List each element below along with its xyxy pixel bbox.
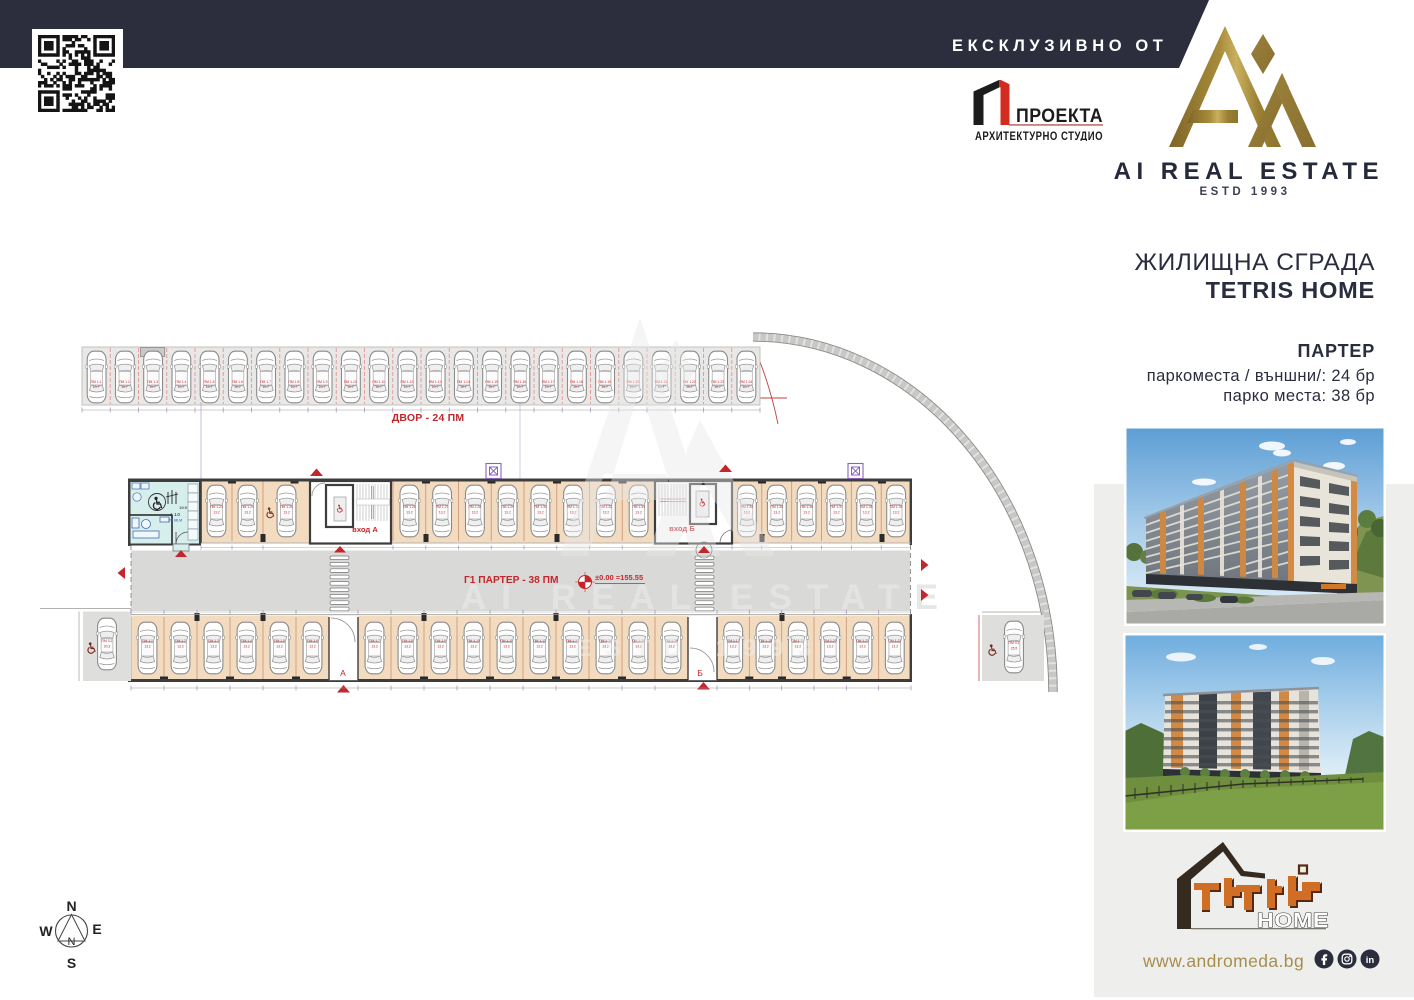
svg-text:ПМ 1.10: ПМ 1.10 [344,380,357,384]
svg-text:ПМ 1.2: ПМ 1.2 [119,380,130,384]
svg-text:13.2: 13.2 [470,645,477,649]
svg-text:13.2: 13.2 [827,645,834,649]
svg-text:ПМ 1.28: ПМ 1.28 [468,505,481,509]
svg-text:ПМ 1.11: ПМ 1.11 [500,639,513,643]
svg-text:25.5: 25.5 [1011,647,1018,651]
svg-text:10.7: 10.7 [686,385,693,389]
svg-text:10.7: 10.7 [517,385,524,389]
svg-text:ПМ 1.23: ПМ 1.23 [210,505,223,509]
svg-text:10.7: 10.7 [262,385,269,389]
svg-text:ПМ 1.6: ПМ 1.6 [232,380,243,384]
svg-text:10.7: 10.7 [93,385,100,389]
svg-text:13.2: 13.2 [893,511,900,515]
svg-text:ПМ 1.5: ПМ 1.5 [274,639,285,643]
svg-text:20.3: 20.3 [104,645,111,649]
svg-text:ПМ 1.38: ПМ 1.38 [860,505,873,509]
svg-text:ДВОР - 24 ПМ: ДВОР - 24 ПМ [392,412,465,424]
svg-text:10.7: 10.7 [149,385,156,389]
svg-text:13.2: 13.2 [859,645,866,649]
svg-text:ПМ 1.1: ПМ 1.1 [142,639,153,643]
svg-text:ПМ 1.3: ПМ 1.3 [208,639,219,643]
svg-text:13.2: 13.2 [863,511,870,515]
svg-text:13.2: 13.2 [891,645,898,649]
svg-text:13.2: 13.2 [243,645,250,649]
svg-text:13.2: 13.2 [371,645,378,649]
svg-text:ПМ 1.37: ПМ 1.37 [830,505,843,509]
svg-text:19.9: 19.9 [179,505,188,510]
svg-text:13.2: 13.2 [803,511,810,515]
svg-text:ПМ 1.26: ПМ 1.26 [403,505,416,509]
svg-text:ПМ 1.8: ПМ 1.8 [288,380,299,384]
svg-text:ПМ 1.4: ПМ 1.4 [241,639,252,643]
svg-text:13.2: 13.2 [536,645,543,649]
svg-text:13.2: 13.2 [144,645,151,649]
svg-text:ПМ 1.8: ПМ 1.8 [402,639,413,643]
svg-text:ПМ 1.4: ПМ 1.4 [175,380,186,384]
svg-text:13.2: 13.2 [472,511,479,515]
svg-text:13.2: 13.2 [635,511,642,515]
svg-text:ПМ 1.39: ПМ 1.39 [890,505,903,509]
svg-text:ПМ 3.2: ПМ 3.2 [102,639,113,643]
svg-text:10.7: 10.7 [404,385,411,389]
svg-text:13.2: 13.2 [210,645,217,649]
svg-text:13.2: 13.2 [833,511,840,515]
svg-text:13.2: 13.2 [437,645,444,649]
svg-text:ПМ 1.11: ПМ 1.11 [372,380,385,384]
svg-text:ПМ 1.2: ПМ 1.2 [175,639,186,643]
svg-text:ПМ 1.17: ПМ 1.17 [542,380,555,384]
svg-text:10.7: 10.7 [432,385,439,389]
svg-text:ПМ 1.6: ПМ 1.6 [307,639,318,643]
svg-text:13.2: 13.2 [213,511,220,515]
svg-text:20 кв.м: 20 кв.м [168,518,182,523]
svg-text:10.7: 10.7 [573,385,580,389]
svg-text:10.7: 10.7 [488,385,495,389]
svg-text:ПМ 1.7: ПМ 1.7 [369,639,380,643]
svg-text:ПМ 1.14: ПМ 1.14 [457,380,470,384]
svg-text:N: N [66,898,76,914]
svg-text:ПМ 1.22: ПМ 1.22 [888,639,901,643]
svg-text:10.7: 10.7 [291,385,298,389]
svg-text:ПМ 1.36: ПМ 1.36 [800,505,813,509]
svg-text:13.2: 13.2 [504,511,511,515]
svg-text:ПМ 1.25: ПМ 1.25 [280,505,293,509]
svg-text:10.7: 10.7 [545,385,552,389]
svg-text:10.7: 10.7 [178,385,185,389]
svg-text:13.2: 13.2 [406,511,413,515]
svg-text:ПМ 1.19: ПМ 1.19 [598,380,611,384]
svg-text:W: W [39,923,53,939]
svg-text:10.7: 10.7 [319,385,326,389]
svg-text:ПМ 3.1: ПМ 3.1 [1009,641,1020,645]
svg-text:10.7: 10.7 [743,385,750,389]
svg-text:ESTD 1993: ESTD 1993 [575,635,825,662]
svg-text:ПМ 1.20: ПМ 1.20 [824,639,837,643]
svg-text:E: E [92,921,101,937]
svg-text:13.2: 13.2 [603,511,610,515]
svg-text:13.2: 13.2 [439,511,446,515]
svg-text:ПМ 1.24: ПМ 1.24 [241,505,254,509]
svg-text:ПМ 1.3: ПМ 1.3 [147,380,158,384]
svg-text:N: N [68,936,76,948]
svg-text:10.7: 10.7 [601,385,608,389]
svg-text:13.2: 13.2 [244,511,251,515]
svg-text:ПМ 1.10: ПМ 1.10 [467,639,480,643]
svg-text:ПМ 1.5: ПМ 1.5 [204,380,215,384]
svg-text:ПМ 1.12: ПМ 1.12 [400,380,413,384]
svg-text:ПМ 1.16: ПМ 1.16 [513,380,526,384]
svg-text:ПМ 1.1: ПМ 1.1 [91,380,102,384]
svg-text:10.7: 10.7 [234,385,241,389]
svg-text:10.7: 10.7 [121,385,128,389]
svg-text:ПМ 1.29: ПМ 1.29 [501,505,514,509]
svg-text:ПМ 1.18: ПМ 1.18 [570,380,583,384]
svg-text:13.2: 13.2 [309,645,316,649]
svg-text:ПМ 1.33: ПМ 1.33 [632,505,645,509]
svg-text:ПМ 1.7: ПМ 1.7 [260,380,271,384]
svg-text:Б: Б [697,668,703,678]
svg-text:ПМ 1.15: ПМ 1.15 [485,380,498,384]
svg-text:10.7: 10.7 [375,385,382,389]
svg-text:13.2: 13.2 [283,511,290,515]
svg-text:13.2: 13.2 [177,645,184,649]
svg-text:ПМ 1.12: ПМ 1.12 [533,639,546,643]
svg-text:ПМ 1.23: ПМ 1.23 [711,380,724,384]
svg-text:ПМ 1.35: ПМ 1.35 [770,505,783,509]
svg-text:13.2: 13.2 [503,645,510,649]
svg-text:ПМ 1.9: ПМ 1.9 [435,639,446,643]
svg-text:А: А [340,668,346,678]
svg-text:13.2: 13.2 [773,511,780,515]
svg-text:ПМ 1.24: ПМ 1.24 [739,380,752,384]
svg-text:AI REAL ESTATE: AI REAL ESTATE [461,578,953,617]
svg-text:ПМ 1.9: ПМ 1.9 [317,380,328,384]
svg-text:13.2: 13.2 [276,645,283,649]
svg-text:10.7: 10.7 [347,385,354,389]
svg-text:ПМ 1.30: ПМ 1.30 [534,505,547,509]
svg-text:S: S [67,955,76,971]
svg-text:ПМ 1.27: ПМ 1.27 [436,505,449,509]
svg-text:вход А: вход А [352,525,378,534]
svg-text:10.7: 10.7 [206,385,213,389]
svg-text:А 1.0: А 1.0 [170,512,180,517]
svg-text:ПМ 1.13: ПМ 1.13 [429,380,442,384]
svg-text:ПМ 1.21: ПМ 1.21 [856,639,869,643]
svg-text:13.2: 13.2 [537,511,544,515]
svg-text:10.7: 10.7 [460,385,467,389]
svg-text:10.7: 10.7 [714,385,721,389]
svg-text:13.2: 13.2 [404,645,411,649]
